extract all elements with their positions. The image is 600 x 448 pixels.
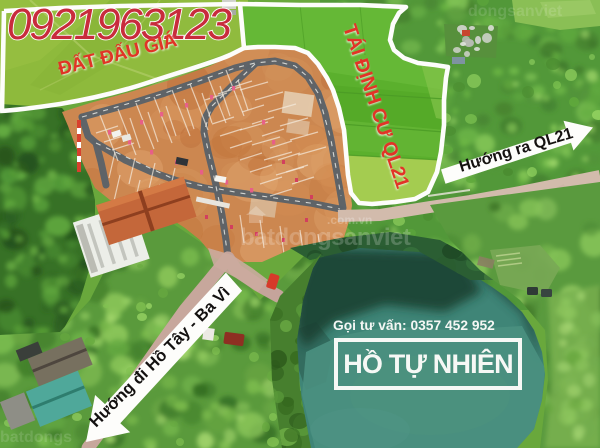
svg-text:0921963123: 0921963123 (7, 0, 232, 49)
svg-text:.com.vn: .com.vn (327, 213, 372, 227)
svg-text:Gọi tư vấn: 0357 452 952: Gọi tư vấn: 0357 452 952 (333, 318, 495, 333)
svg-text:batdongsanviet: batdongsanviet (240, 224, 411, 251)
svg-text:batdongs: batdongs (0, 429, 72, 446)
svg-text:HỒ TỰ NHIÊN: HỒ TỰ NHIÊN (343, 348, 513, 379)
svg-text:dongsanviet: dongsanviet (468, 3, 563, 20)
